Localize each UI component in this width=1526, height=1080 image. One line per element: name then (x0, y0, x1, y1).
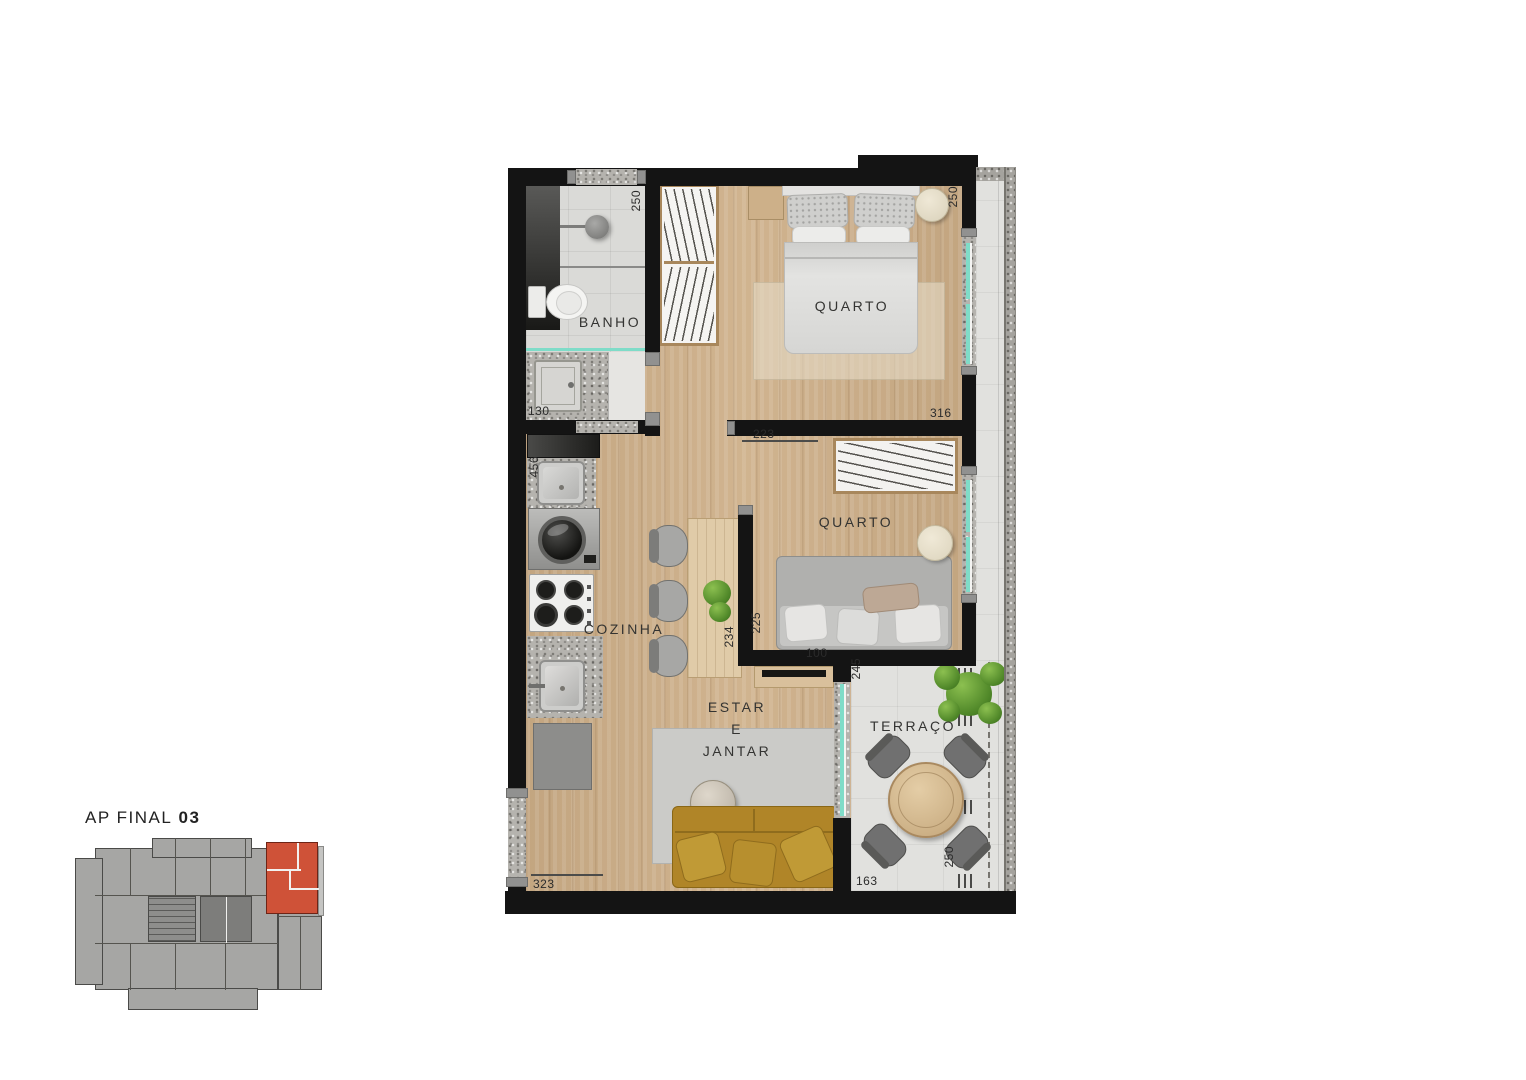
dim-bed1-bottom-right: 316 (930, 406, 952, 420)
window-cap (961, 594, 977, 603)
kitchen-cart (533, 723, 592, 790)
tv-console (754, 666, 834, 688)
dim-living-bottom-right: 250 (942, 846, 956, 868)
dim-kitchen-sink: 456 (527, 456, 541, 478)
dim-living-bottom-left: 323 (533, 877, 555, 891)
exterior-wall-top-cap (976, 167, 1004, 181)
wall-top-step (858, 155, 978, 169)
shower-head (585, 215, 609, 239)
bed-pillow (786, 193, 848, 229)
dim-terrace-top: 245 (849, 658, 863, 680)
table-plant (709, 602, 731, 622)
sofa-seam-v (753, 809, 755, 833)
room-label-bedroom1: QUARTO (792, 298, 912, 314)
dim-bath-top: 250 (629, 190, 643, 212)
keyplan-building (75, 838, 325, 1012)
keyplan-wall (245, 838, 246, 895)
wardrobe-bedroom1 (659, 184, 719, 346)
unit-wall (289, 869, 291, 889)
wall-bottom (505, 891, 1016, 914)
dim-bath-bottom: 130 (528, 404, 550, 418)
chair-back (649, 529, 659, 563)
bedroom1-side-table (915, 188, 949, 222)
keyplan-wall (300, 916, 301, 990)
burner-large (534, 603, 558, 627)
unit-wall (267, 869, 301, 871)
living-label-line1: ESTAR (667, 696, 807, 718)
terrace-partition-bottom (833, 818, 851, 893)
sink-drain (560, 686, 565, 691)
dim-bed2-bottom: 100 (806, 646, 828, 660)
faucet-dot (568, 382, 574, 388)
keyplan-mass (152, 838, 252, 858)
wall-left-upper (508, 168, 526, 796)
walkway-tile-joint (998, 181, 999, 891)
window-cap (506, 877, 528, 887)
door-jamb (645, 412, 660, 426)
dim-line-223 (742, 440, 818, 442)
faucet (529, 684, 545, 688)
unit-wall (297, 843, 299, 870)
sofa (672, 806, 838, 888)
keyplan-title-number: 03 (179, 808, 201, 827)
toilet-tank (528, 286, 546, 318)
keyplan-wall (225, 943, 226, 990)
door-jamb (738, 505, 753, 515)
window-cap (961, 228, 977, 237)
sofa-pillow (728, 838, 777, 887)
keyplan-elevator-core (200, 896, 252, 942)
dining-chair (650, 580, 688, 622)
burner (564, 580, 584, 600)
door-jamb (727, 421, 735, 435)
room-label-terrace: TERRAÇO (853, 718, 973, 734)
window-living (508, 796, 526, 879)
sofa-bed-pillow (836, 608, 880, 647)
living-label-line2: E (667, 718, 807, 740)
dim-line-323 (531, 874, 603, 876)
window-glass-inner (970, 480, 972, 592)
wardrobe-hangers (664, 189, 714, 264)
bathroom-bottom-sill (576, 421, 638, 433)
window-glass-inner (970, 243, 972, 364)
room-label-kitchen: COZINHA (564, 621, 684, 637)
keyplan-wall (175, 943, 176, 990)
dim-bed2-side: 225 (749, 612, 763, 634)
keyplan-wall (130, 848, 131, 895)
wardrobe-hangers (838, 443, 953, 489)
sliding-door-glass-inner (844, 684, 846, 816)
floorplan-canvas: BANHO QUARTO QUARTO COZINHA ESTAR E JANT… (0, 0, 1526, 1080)
exterior-wall-right (1004, 167, 1016, 891)
kitchen-sink (539, 660, 585, 712)
nightstand (748, 186, 784, 220)
wardrobe-bedroom2 (833, 438, 958, 494)
sink-drain (559, 485, 564, 490)
keyplan-elevator-divider (226, 897, 227, 943)
window-bathroom (576, 169, 637, 185)
sink-basin (543, 467, 579, 499)
duvet-fold (785, 257, 917, 259)
sofa-bed-pillow (784, 603, 829, 643)
shower-arm (560, 225, 588, 228)
cooktop-knobs (587, 583, 591, 625)
keyplan-mass (75, 858, 103, 985)
sofa-pillow (674, 830, 727, 883)
washing-machine (528, 508, 600, 570)
dim-dining-side: 234 (722, 626, 736, 648)
keyplan-highlighted-unit (266, 842, 318, 914)
tv (762, 670, 826, 677)
unit-wall (289, 888, 319, 890)
dim-bed1-top-right: 250 (946, 186, 960, 208)
bed-pillow (853, 193, 915, 229)
dining-chair (650, 635, 688, 677)
terrace-plant (934, 664, 960, 690)
terrace-table (888, 762, 964, 838)
room-label-living: ESTAR E JANTAR (667, 696, 807, 762)
washer-control (584, 555, 596, 563)
terrace-plant (978, 702, 1002, 724)
chair-back (649, 639, 659, 673)
dim-bed1-wall: 223 (753, 427, 775, 441)
room-label-bathroom: BANHO (560, 314, 660, 330)
window-cap (506, 788, 528, 798)
shower-screen-line (560, 266, 645, 268)
keyplan-wall (95, 943, 278, 944)
kitchen-shaft (527, 434, 600, 458)
keyplan-stair-core (148, 896, 196, 942)
vanity-counter-light (608, 352, 645, 420)
double-bed (782, 184, 920, 356)
wall-bathroom-right-stub (645, 426, 660, 436)
window-cap (637, 170, 646, 184)
window-cap (961, 466, 977, 475)
room-label-bedroom2: QUARTO (796, 514, 916, 530)
door-jamb (645, 352, 660, 366)
keyplan-title: AP FINAL 03 (85, 808, 200, 828)
keyplan-mass (128, 988, 258, 1010)
toilet-seat (556, 291, 582, 315)
keyplan-wall (210, 838, 211, 895)
table-grain (898, 772, 954, 828)
dining-chair (650, 525, 688, 567)
living-label-line3: JANTAR (667, 740, 807, 762)
bedroom2-side-table (917, 525, 953, 561)
wardrobe-hangers (664, 267, 714, 341)
window-cap (567, 170, 576, 184)
bathroom-glass-line (526, 348, 645, 351)
sofa-bed (776, 556, 952, 650)
laundry-sink (537, 461, 585, 505)
burner (536, 580, 556, 600)
dim-terrace-bottom-left: 163 (856, 874, 878, 888)
keyplan-wall (130, 943, 131, 990)
keyplan-wall (175, 838, 176, 895)
window-cap (961, 366, 977, 375)
terrace-plant (980, 662, 1006, 686)
keyplan-title-prefix: AP FINAL (85, 808, 172, 827)
chair-back (649, 584, 659, 618)
keyplan-balcony-strip (318, 846, 324, 916)
